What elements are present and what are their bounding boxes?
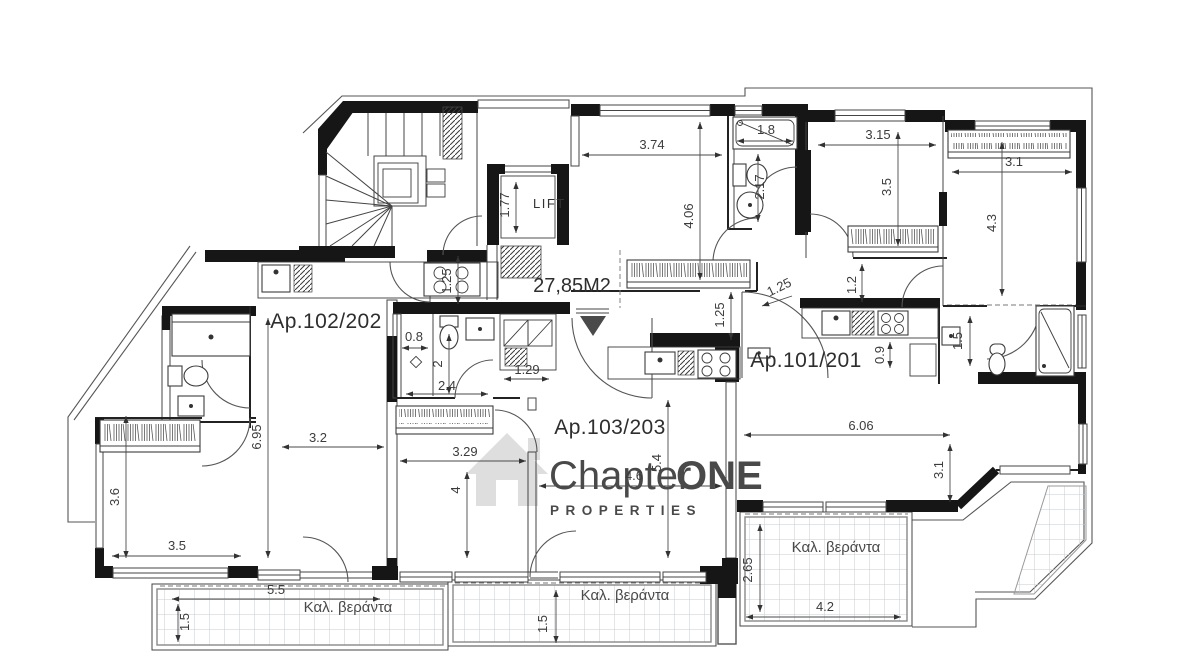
- dim-label: 4.06: [681, 203, 696, 228]
- door-bedroom-topmiddle: [713, 218, 757, 262]
- sink: [262, 265, 290, 292]
- wardrobe: [396, 406, 493, 434]
- bath-ap103: [410, 316, 552, 368]
- dim-label: 1.5: [950, 332, 965, 350]
- dim-label: 5.4: [649, 454, 664, 472]
- stairwell: [299, 101, 478, 258]
- window: [826, 502, 886, 512]
- watermark-subtitle: PROPERTIES: [550, 503, 702, 518]
- window: [455, 572, 528, 582]
- lift-shaft: LIFT 1.77: [487, 164, 569, 278]
- dim-label: 3.29: [452, 444, 477, 459]
- dim-label: 1.2: [844, 276, 859, 294]
- window: [560, 572, 660, 582]
- watermark-brand-b: ONE: [676, 454, 763, 498]
- window: [735, 106, 762, 115]
- dim-label: 1.25: [712, 302, 727, 327]
- dim-label: 4.6: [625, 468, 643, 483]
- dim-label: 2.4: [438, 378, 456, 393]
- stove: [698, 350, 736, 378]
- dim-label: 2.65: [740, 557, 755, 582]
- window: [763, 502, 823, 512]
- dim-lift-width: 1.77: [497, 192, 512, 217]
- label-veranda-center: Καλ. βεράντα: [581, 587, 670, 604]
- wardrobe: [627, 260, 750, 288]
- watermark-brand-a: Chapter: [549, 454, 691, 498]
- door-hall-to-ap103: [572, 318, 652, 398]
- bath-ap102: [168, 314, 250, 416]
- lift-label: LIFT: [533, 196, 566, 211]
- closet-ap103: [504, 320, 552, 366]
- kitchen-ap103: [608, 347, 740, 379]
- stair-landing: [374, 156, 445, 206]
- stair-hatched-column: [443, 107, 462, 159]
- dim-label: 1.29: [514, 362, 539, 377]
- door-bath-ap103: [455, 360, 493, 398]
- door-bedroom-topright: [810, 214, 853, 257]
- window: [400, 572, 452, 582]
- dim-label: 2.17: [752, 174, 767, 199]
- label-ap101: Ap.101/201: [750, 349, 861, 372]
- sink: [822, 311, 850, 335]
- dim-label: 3.5: [879, 178, 894, 196]
- dim-label: 4: [448, 486, 463, 493]
- window: [663, 572, 706, 582]
- dim-label: 6.95: [249, 424, 264, 449]
- window: [600, 105, 710, 116]
- door-bath-ap102: [202, 360, 250, 408]
- window: [258, 570, 300, 580]
- label-ap102: Ap.102/202: [270, 310, 381, 333]
- window: [1078, 315, 1086, 368]
- dim-label: 3.15: [865, 127, 890, 142]
- shower: [1036, 306, 1074, 376]
- dim-label: 1.25: [439, 268, 454, 293]
- floor-plan: Chapter ONE PROPERTIES: [0, 0, 1200, 661]
- toilet: [989, 344, 1005, 375]
- dim-label: 0.8: [405, 329, 423, 344]
- entrance-marker: [576, 309, 609, 336]
- dim-label: 1.5: [535, 615, 550, 633]
- sink: [645, 352, 675, 374]
- counter-return: [910, 344, 936, 376]
- door-balcony-ap103: [530, 531, 576, 577]
- lift-sill-hatch: [501, 246, 541, 278]
- window: [835, 110, 905, 121]
- door-bedroom-ap102: [202, 418, 250, 466]
- label-hall-area: 27,85M2: [533, 275, 611, 297]
- floor-plan-drawing: Chapter ONE PROPERTIES: [0, 0, 1200, 661]
- dim-label: 1.25: [764, 275, 793, 300]
- stove: [878, 311, 908, 335]
- window: [1079, 424, 1087, 464]
- window: [1000, 466, 1070, 474]
- label-veranda-left: Καλ. βεράντα: [304, 599, 393, 616]
- label-ap103: Ap.103/203: [554, 416, 665, 439]
- dim-label: 3.5: [168, 538, 186, 553]
- kitchen-ap102: [258, 262, 498, 298]
- toilet: [168, 366, 208, 386]
- wardrobe: [100, 420, 200, 452]
- shower-drain: [410, 356, 421, 367]
- dim-label: 3.2: [309, 430, 327, 445]
- wardrobe: [848, 226, 938, 252]
- dim-label: 3.1: [1005, 154, 1023, 169]
- dim-label: 3.74: [639, 137, 664, 152]
- dim-label: 1.8: [757, 122, 775, 137]
- door-stair-hall: [443, 216, 482, 255]
- dim-label: 5.5: [267, 582, 285, 597]
- door-balcony-ap102: [303, 537, 348, 582]
- dim-label: 3.1: [931, 461, 946, 479]
- dimension-lines: [112, 122, 1072, 643]
- dim-label: 4.2: [816, 599, 834, 614]
- dim-label: 1.5: [177, 613, 192, 631]
- watermark: Chapter ONE PROPERTIES: [466, 433, 763, 518]
- dim-label: 6.06: [848, 418, 873, 433]
- dim-label: 0.9: [872, 346, 887, 364]
- window: [113, 568, 228, 578]
- window: [1077, 188, 1086, 262]
- dim-label: 2: [430, 360, 445, 367]
- veranda-bottom-left: [152, 584, 448, 650]
- dim-label: 4.3: [984, 214, 999, 232]
- label-veranda-right: Καλ. βεράντα: [792, 539, 881, 556]
- dim-label: 3.6: [107, 488, 122, 506]
